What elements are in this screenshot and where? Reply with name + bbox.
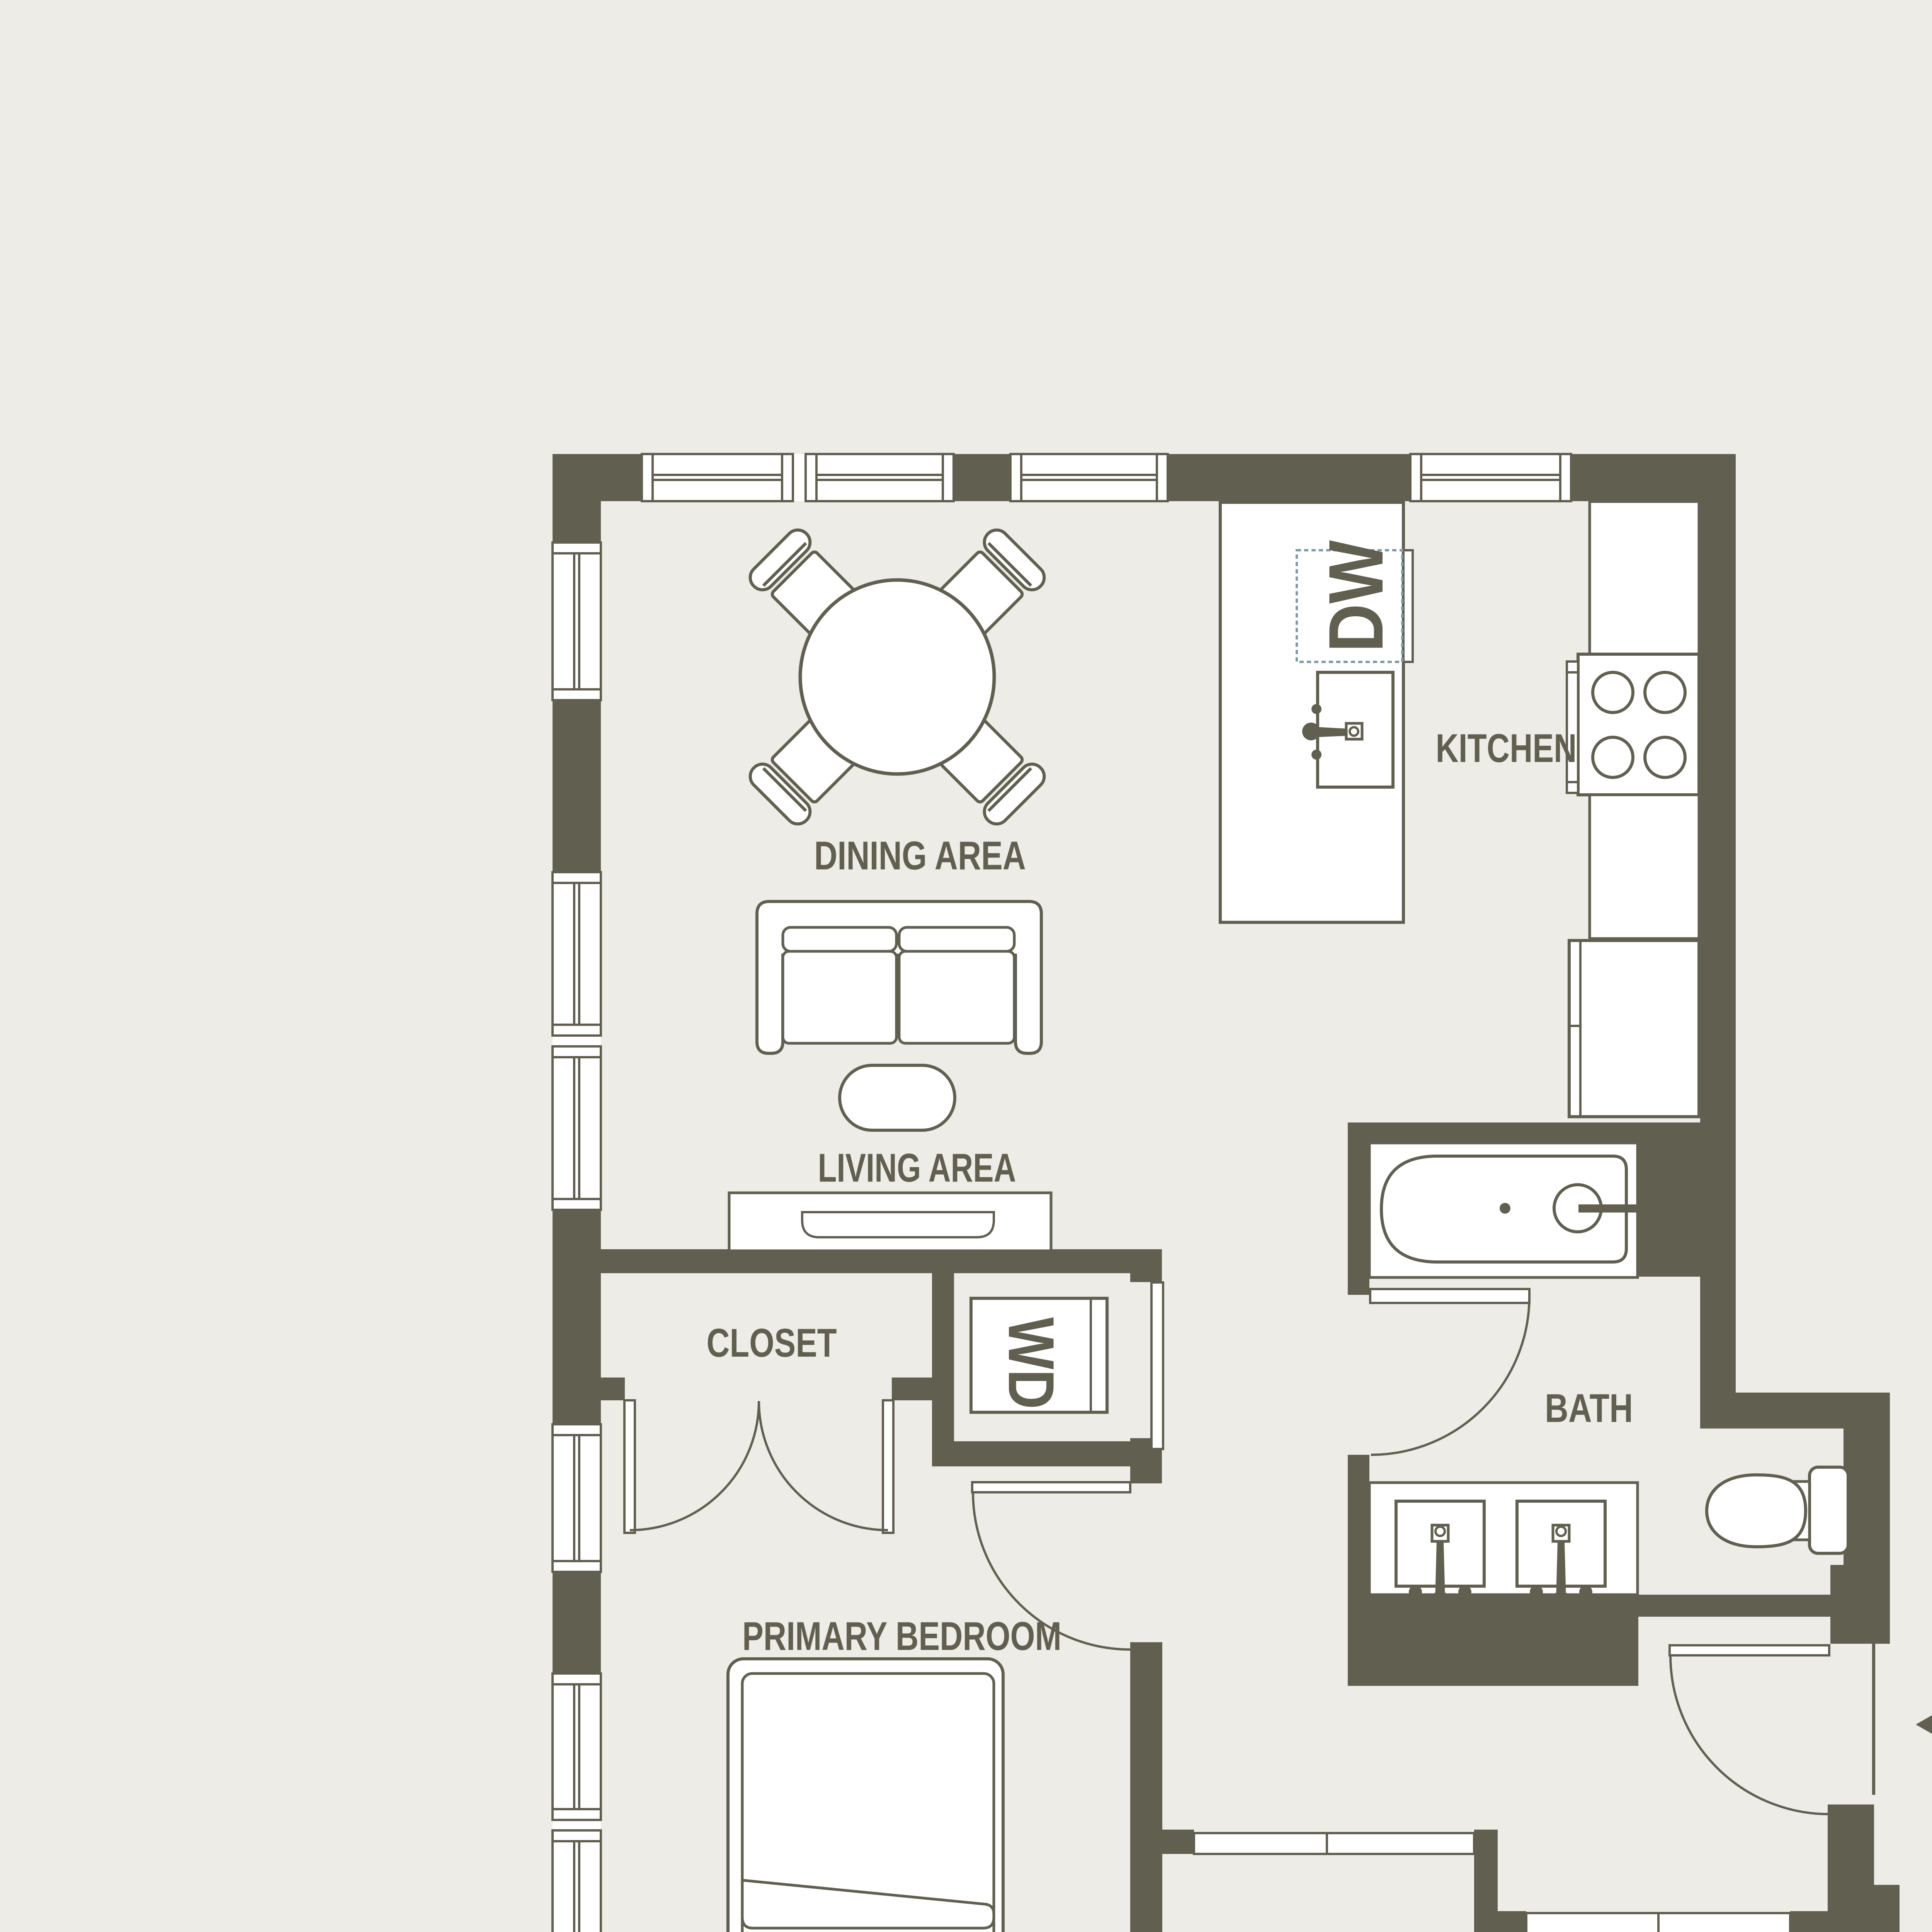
svg-text:KITCHEN: KITCHEN (1436, 726, 1577, 771)
svg-text:DINING AREA: DINING AREA (814, 833, 1026, 878)
svg-text:BATH: BATH (1545, 1386, 1633, 1431)
svg-text:CLOSET: CLOSET (707, 1321, 837, 1366)
svg-text:WD: WD (995, 1317, 1068, 1409)
svg-text:DW: DW (1313, 540, 1399, 652)
svg-text:LIVING AREA: LIVING AREA (818, 1146, 1016, 1190)
svg-text:PRIMARY BEDROOM: PRIMARY BEDROOM (742, 1614, 1061, 1659)
